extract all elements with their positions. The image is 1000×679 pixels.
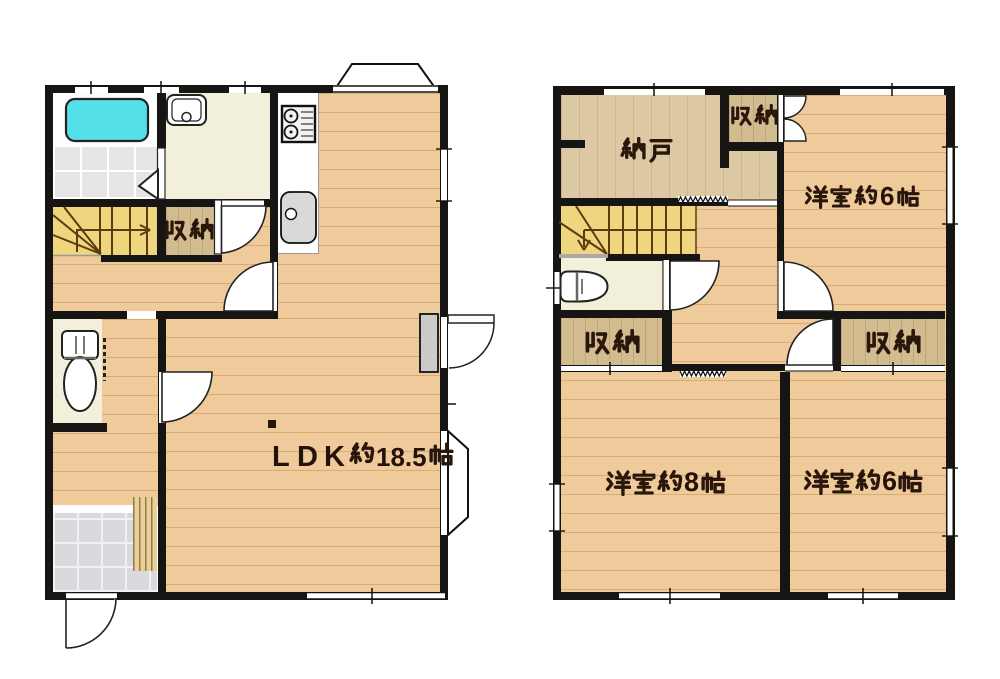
svg-text:6: 6 [880,181,894,211]
svg-text:18.5: 18.5 [376,442,427,472]
svg-text:D: D [297,441,318,473]
svg-text:K: K [324,441,345,473]
svg-text:6: 6 [882,466,897,496]
svg-text:8: 8 [684,467,699,497]
svg-text:L: L [272,441,290,473]
